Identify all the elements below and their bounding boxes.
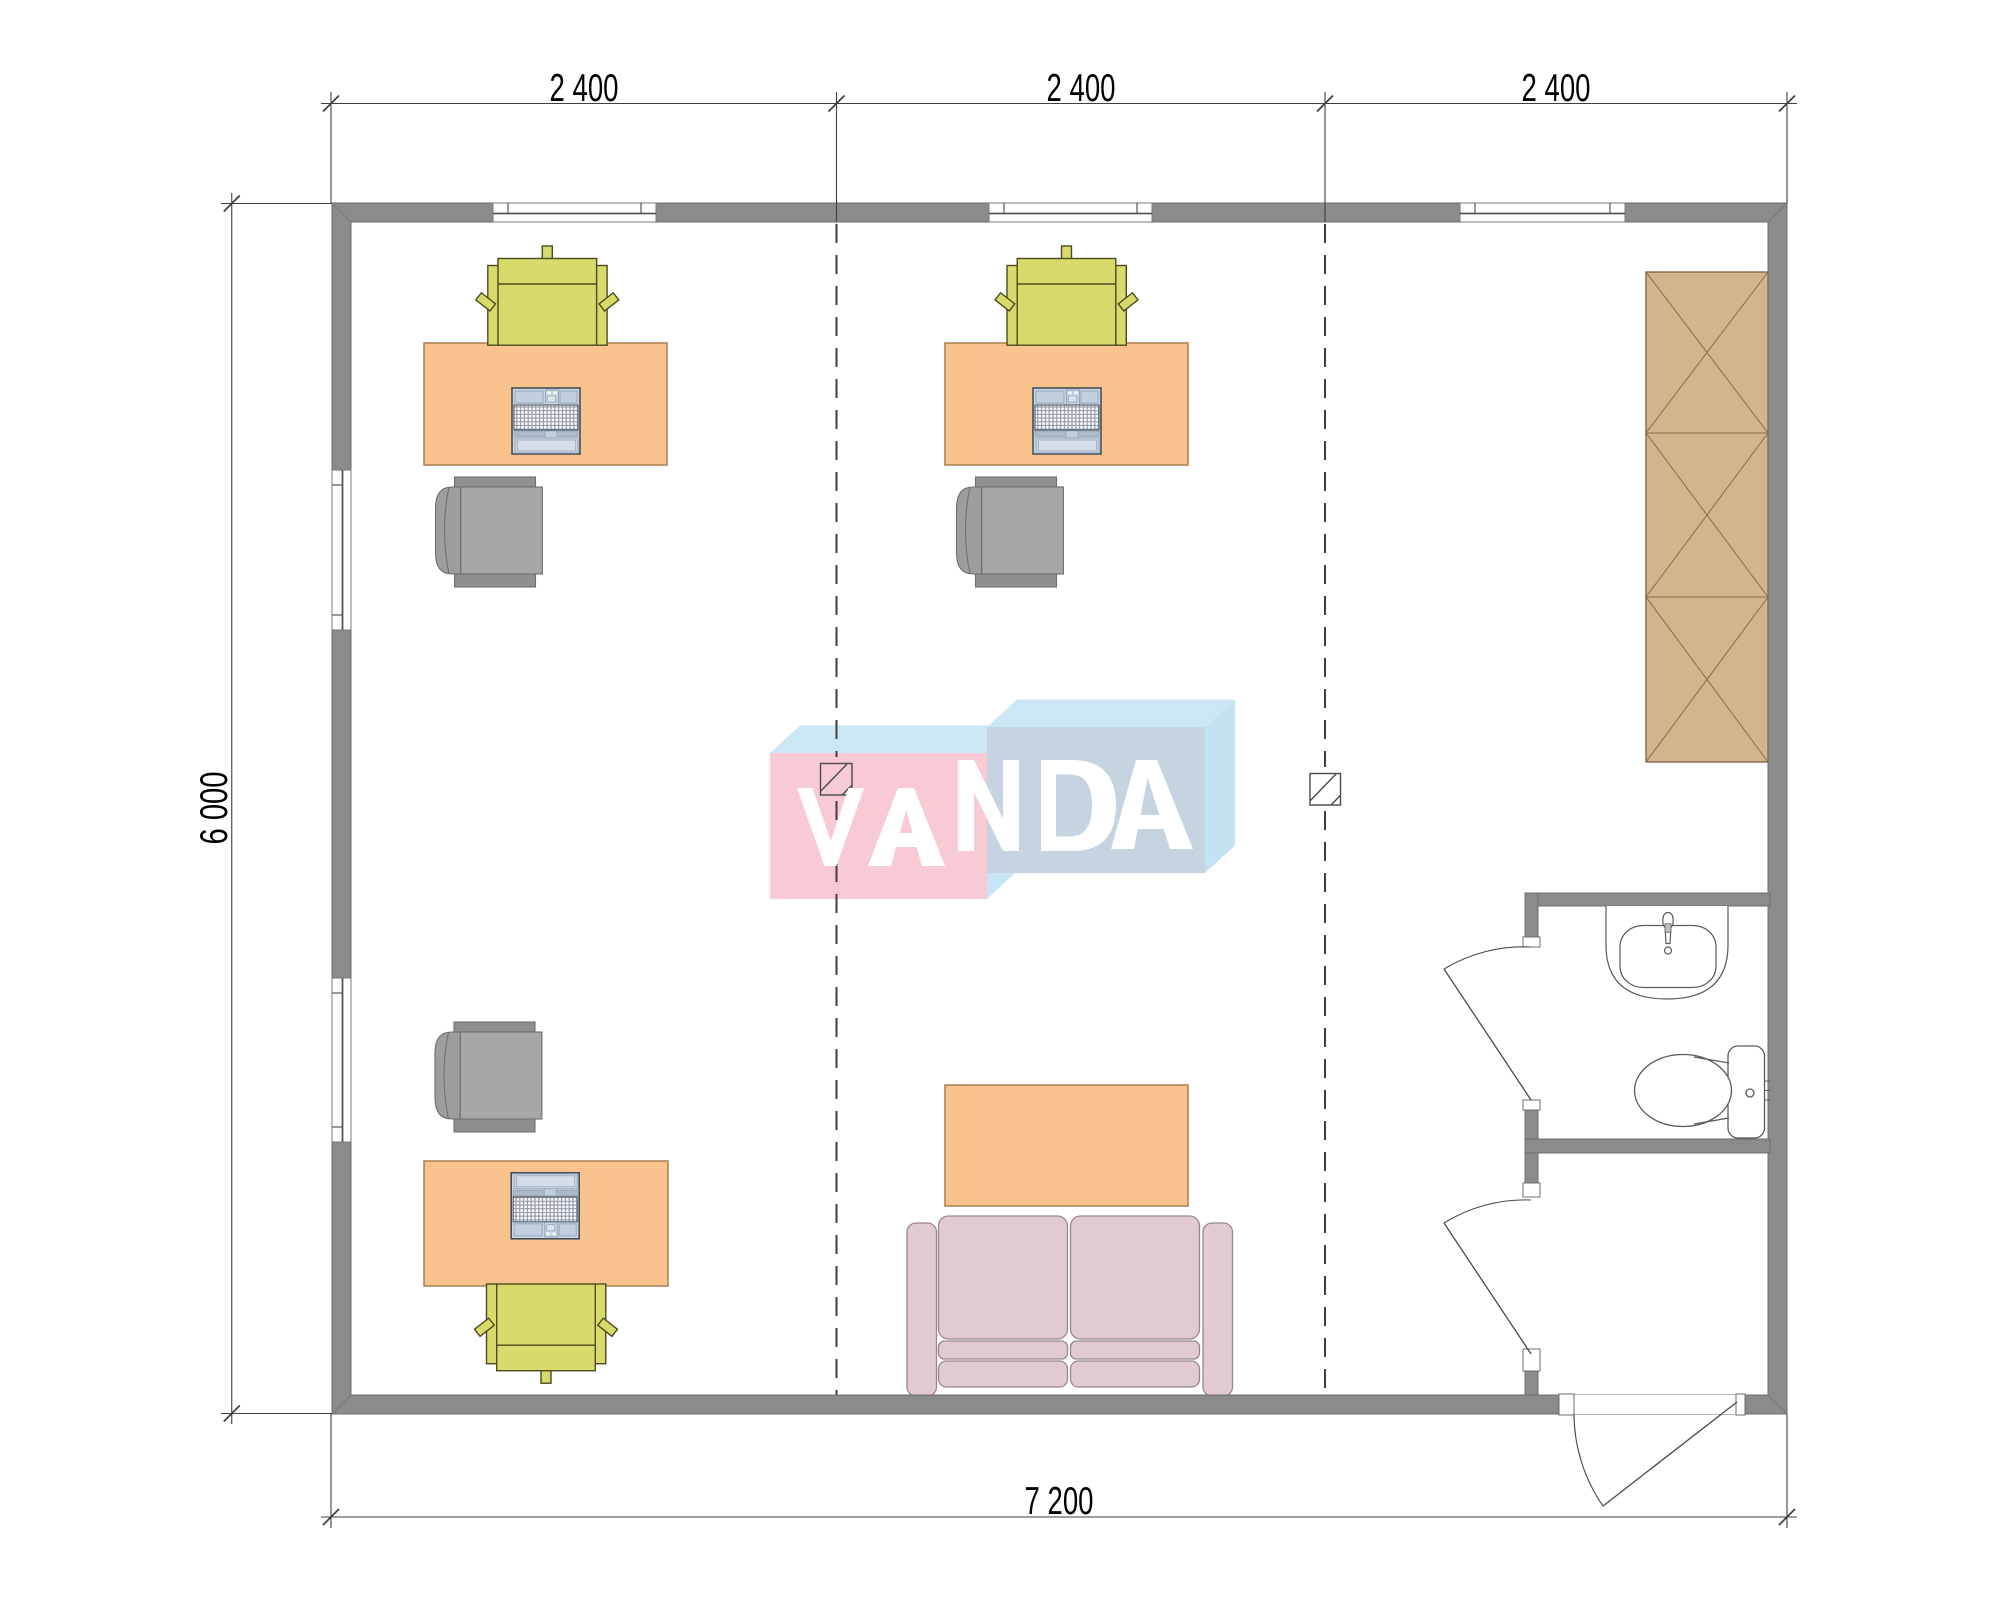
svg-text:7 200: 7 200: [1025, 1480, 1094, 1523]
svg-text:2 400: 2 400: [1047, 67, 1116, 110]
svg-text:6 000: 6 000: [193, 772, 236, 845]
svg-text:2 400: 2 400: [1522, 67, 1591, 110]
svg-text:2 400: 2 400: [550, 67, 619, 110]
